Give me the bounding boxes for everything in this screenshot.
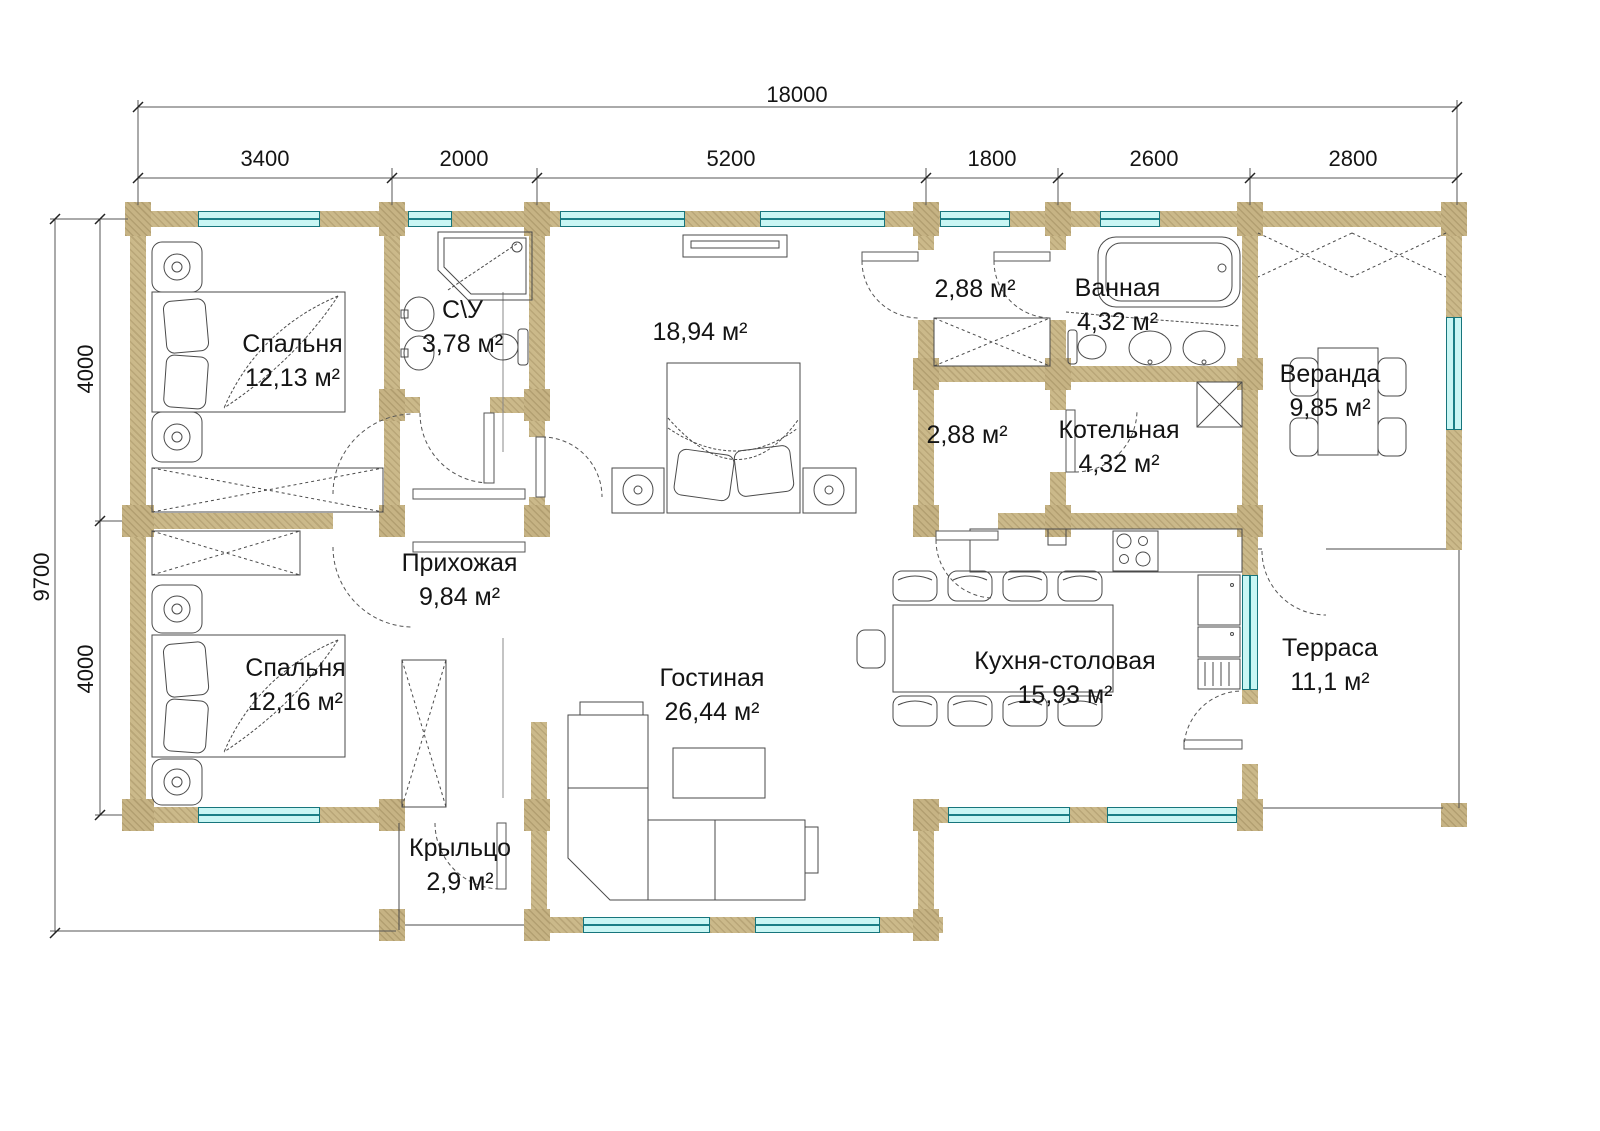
room-area: 2,88 м²	[892, 419, 1042, 453]
door-arc	[1184, 691, 1242, 749]
room-label-bedroom2: Спальня 12,16 м²	[208, 652, 383, 720]
wardrobe-icon	[402, 660, 446, 807]
kitchen-counter-icon	[970, 529, 1242, 572]
room-name: Гостиная	[622, 662, 802, 696]
room-label-terrace: Терраса 11,1 м²	[1245, 632, 1415, 700]
room-name: Ванная	[1040, 272, 1195, 306]
room-area: 26,44 м²	[622, 696, 802, 730]
veranda-railing-icon	[1258, 233, 1446, 277]
room-label-entry: Прихожая 9,84 м²	[372, 547, 547, 615]
dim-top-3: 5200	[691, 146, 771, 172]
room-area: 18,94 м²	[610, 316, 790, 350]
room-label-boiler: Котельная 4,32 м²	[1030, 414, 1208, 482]
room-label-bathroom: Ванная 4,32 м²	[1040, 272, 1195, 340]
room-area: 15,93 м²	[955, 679, 1175, 713]
dim-top-5: 2600	[1114, 146, 1194, 172]
room-name: Веранда	[1250, 358, 1410, 392]
room-label-living: Гостиная 26,44 м²	[622, 662, 802, 730]
room-area: 3,78 м²	[385, 328, 540, 362]
coffee-table-icon	[673, 748, 765, 798]
wardrobe-icon	[152, 531, 300, 575]
room-label-hall-bottom: 2,88 м²	[892, 419, 1042, 453]
door-arc	[536, 437, 602, 497]
nightstand-lamp-icon	[612, 468, 856, 513]
dim-total-width: 18000	[747, 82, 847, 108]
room-label-hall-top: 2,88 м²	[900, 273, 1050, 307]
room-area: 12,16 м²	[208, 686, 383, 720]
room-area: 2,9 м²	[375, 866, 545, 900]
room-name: Спальня	[205, 328, 380, 362]
dim-left-1: 4000	[73, 329, 99, 409]
wardrobe-icon	[934, 318, 1050, 366]
room-name: Крыльцо	[375, 832, 545, 866]
room-area: 12,13 м²	[205, 362, 380, 396]
room-label-kitchen: Кухня-столовая 15,93 м²	[955, 645, 1175, 713]
fridge-icon	[1198, 575, 1240, 689]
dim-top-2: 2000	[424, 146, 504, 172]
room-area: 9,84 м²	[372, 581, 547, 615]
dim-top-4: 1800	[952, 146, 1032, 172]
tv-stand-icon	[683, 235, 787, 257]
room-area: 11,1 м²	[1245, 666, 1415, 700]
room-name: Кухня-столовая	[955, 645, 1175, 679]
bed-icon	[667, 363, 800, 513]
dim-total-height: 9700	[29, 537, 55, 617]
dimension-lines	[50, 100, 1462, 938]
room-name: Спальня	[208, 652, 383, 686]
sofa-icon	[568, 702, 818, 900]
door-arc	[936, 531, 998, 598]
wardrobe-icon	[152, 468, 383, 512]
dim-left-2: 4000	[73, 629, 99, 709]
dim-top-1: 3400	[225, 146, 305, 172]
room-name: С\У	[385, 294, 540, 328]
room-label-veranda: Веранда 9,85 м²	[1250, 358, 1410, 426]
door-arc	[333, 414, 525, 499]
nightstand-lamp-icon	[152, 242, 202, 462]
room-label-master: 18,94 м²	[610, 316, 790, 350]
floor-plan: Спальня 12,13 м² С\У 3,78 м² 18,94 м² 2,…	[0, 0, 1600, 1131]
room-name: Терраса	[1245, 632, 1415, 666]
room-area: 4,32 м²	[1040, 306, 1195, 340]
room-label-wc: С\У 3,78 м²	[385, 294, 540, 362]
room-name: Котельная	[1030, 414, 1208, 448]
room-area: 4,32 м²	[1030, 448, 1208, 482]
room-area: 9,85 м²	[1250, 392, 1410, 426]
room-label-porch: Крыльцо 2,9 м²	[375, 832, 545, 900]
door-arc	[420, 413, 494, 483]
door-arc	[1262, 551, 1326, 615]
room-name: Прихожая	[372, 547, 547, 581]
room-area: 2,88 м²	[900, 273, 1050, 307]
room-label-bedroom1: Спальня 12,13 м²	[205, 328, 380, 396]
shower-icon	[438, 232, 532, 300]
dim-top-6: 2800	[1313, 146, 1393, 172]
